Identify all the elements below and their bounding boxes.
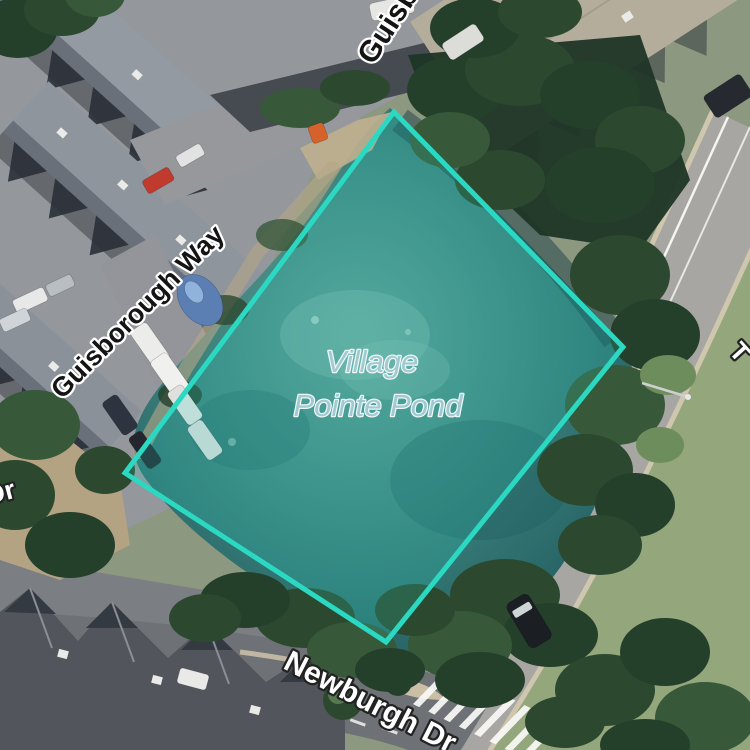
map-canvas[interactable]: Village Pointe Pond Guisborough Way Guis… xyxy=(0,0,750,750)
satellite-map: Village Pointe Pond Guisborough Way Guis… xyxy=(0,0,750,750)
pond-label-line2: Pointe Pond xyxy=(294,388,465,423)
pond-label-line1: Village xyxy=(326,344,419,379)
